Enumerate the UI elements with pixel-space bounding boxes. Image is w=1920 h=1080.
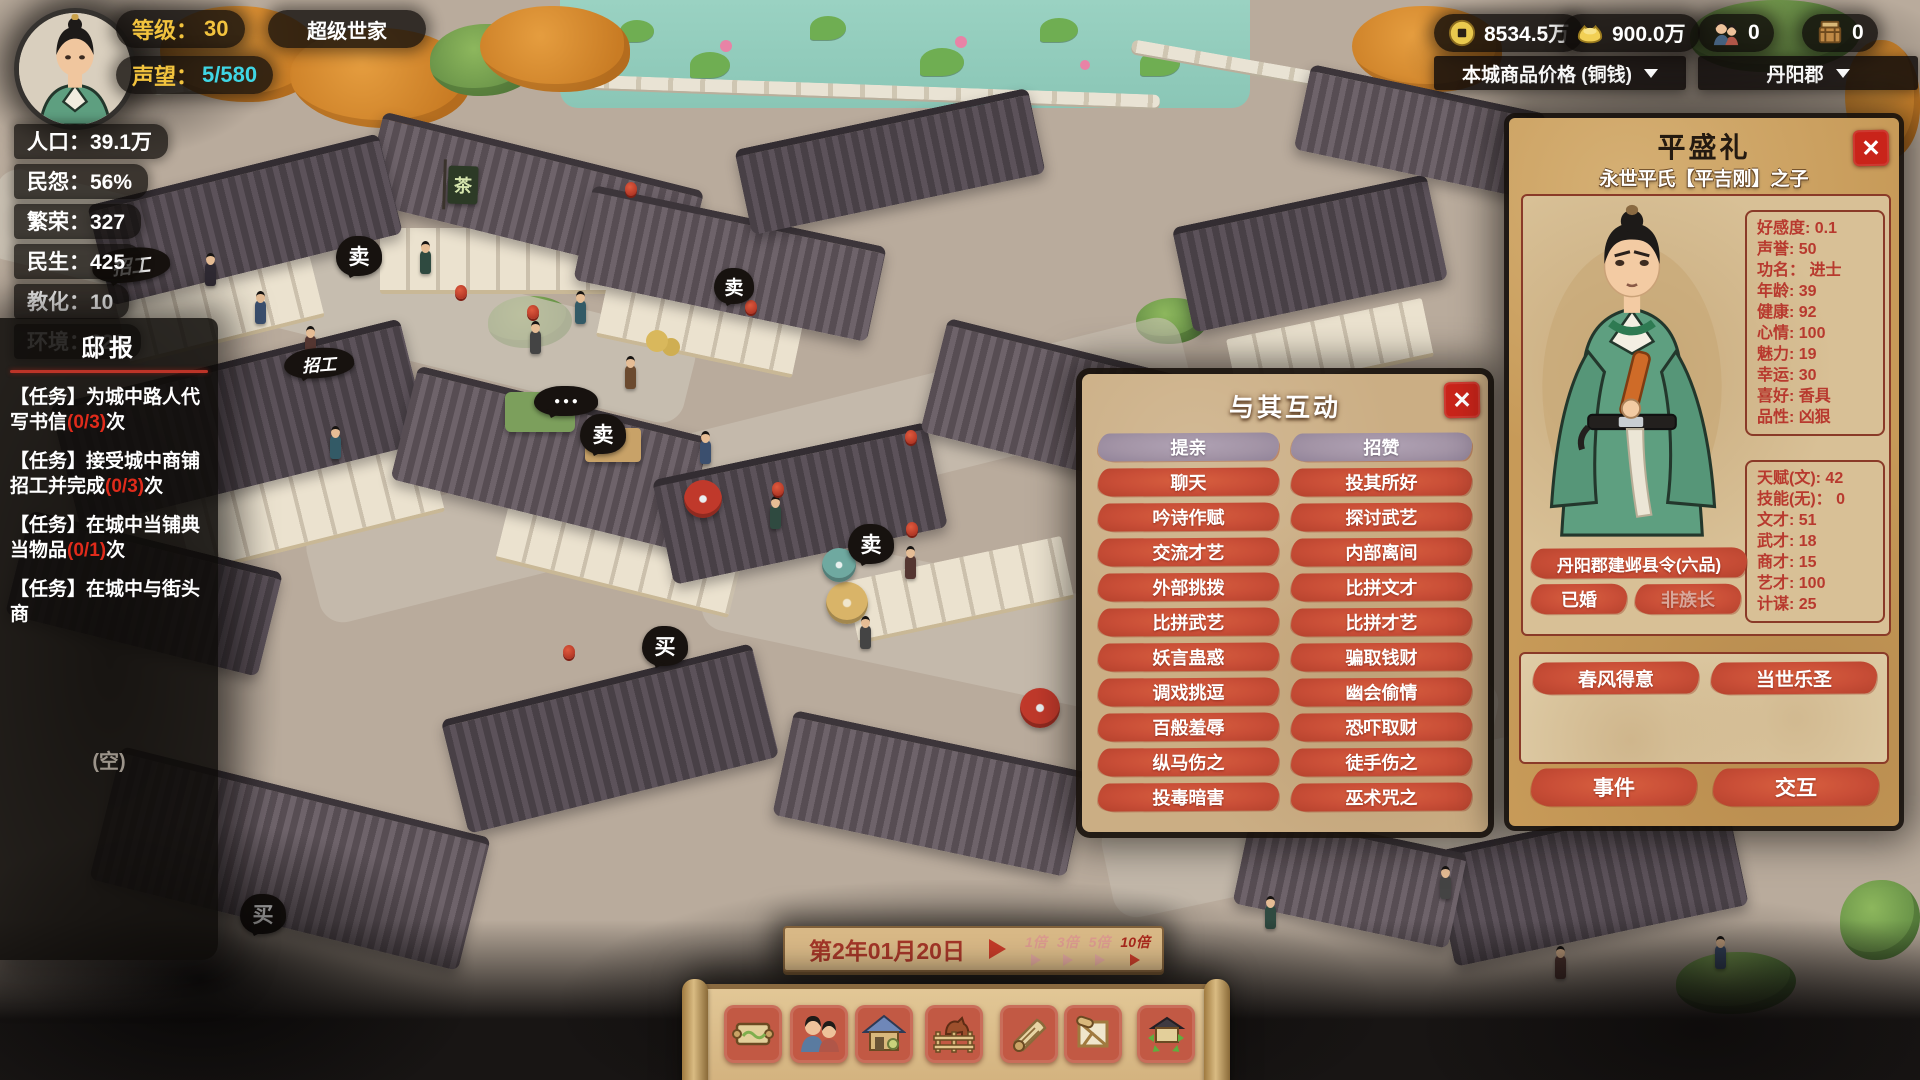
flirt-button[interactable]: 调戏挑逗 <box>1098 677 1279 706</box>
speed-10x-button[interactable]: 10倍 <box>1120 932 1150 966</box>
townsperson[interactable] <box>205 262 216 286</box>
servants-icon <box>1712 19 1740 47</box>
attr-luck: 幸运: 30 <box>1757 365 1873 386</box>
resource-servants: 0 <box>1698 14 1774 52</box>
not-clan-head-badge: 非族长 <box>1635 584 1741 615</box>
task-item[interactable]: 【任务】在城中当铺典当物品(0/1)次 <box>10 513 208 564</box>
speech-bubble-sell-1[interactable]: 卖 <box>336 236 382 276</box>
red-umbrella <box>1020 688 1060 728</box>
red-lantern <box>905 430 917 444</box>
talent-commerce: 商才: 15 <box>1757 552 1873 573</box>
attr-age: 年龄: 39 <box>1757 281 1873 302</box>
speed-5x-icon <box>1095 954 1105 966</box>
compete-martial-button[interactable]: 比拼武艺 <box>1098 607 1279 636</box>
chat-button[interactable]: 聊天 <box>1098 467 1279 496</box>
tool-workshop-button[interactable] <box>1064 1005 1122 1063</box>
townsperson[interactable] <box>1265 905 1276 929</box>
talent-box: 天赋(文): 42 技能(无)： 0 文才: 51 武才: 18 商才: 15 … <box>1745 460 1885 623</box>
interact-row: 外部挑拨 比拼文才 <box>1098 573 1472 601</box>
interact-row: 吟诗作赋 探讨武艺 <box>1098 503 1472 531</box>
speech-bubble-buy-2[interactable]: 买 <box>240 894 286 934</box>
townsperson[interactable] <box>1555 955 1566 979</box>
stat-prosperity: 繁荣：327 <box>14 204 141 239</box>
stat-livelihood: 民生：425 <box>14 244 141 279</box>
lotus-flower <box>955 36 967 48</box>
attr-hobby: 喜好: 香具 <box>1757 386 1873 407</box>
gazette-panel: 邸报 【任务】为城中路人代写书信(0/3)次 【任务】接受城中商铺招工并完成(0… <box>0 318 218 960</box>
townsperson[interactable] <box>420 250 431 274</box>
talent-art: 艺才: 100 <box>1757 573 1873 594</box>
interact-button-grid: 提亲 招赞 聊天 投其所好 吟诗作赋 探讨武艺 交流才艺 内部离间 外部挑拨 比… <box>1098 433 1472 811</box>
discuss-martial-arts-button[interactable]: 探讨武艺 <box>1291 502 1472 531</box>
interact-modal-close-button[interactable]: ✕ <box>1444 382 1481 419</box>
attr-temperament: 品性: 凶狠 <box>1757 407 1873 428</box>
office-badge: 丹阳郡建邺县令(六品) <box>1531 547 1747 579</box>
interact-modal: 与其互动 ✕ 提亲 招赞 聊天 投其所好 吟诗作赋 探讨武艺 交流才艺 内部离间… <box>1082 374 1488 832</box>
event-button[interactable]: 事件 <box>1531 767 1697 806</box>
townsperson[interactable] <box>860 625 871 649</box>
character-name: 平盛礼 <box>1509 126 1899 166</box>
green-bush <box>1676 952 1796 1014</box>
gold-ingot-icon <box>1576 19 1604 47</box>
internal-discord-button[interactable]: 内部离间 <box>1291 537 1472 566</box>
humiliate-button[interactable]: 百般羞辱 <box>1098 712 1279 741</box>
talent-gift: 天赋(文): 42 <box>1757 468 1873 489</box>
red-lantern <box>455 285 467 299</box>
gazette-divider <box>10 370 208 373</box>
level-value: 30 <box>204 16 228 42</box>
townsperson[interactable] <box>625 365 636 389</box>
speech-bubble-dots[interactable]: ● ● ● <box>534 386 598 416</box>
demagogue-button[interactable]: 妖言蛊惑 <box>1098 642 1279 671</box>
green-bush <box>1840 880 1920 960</box>
character-panel-close-button[interactable]: ✕ <box>1853 130 1890 167</box>
resource-copper: 8534.5万 <box>1434 14 1583 52</box>
tool-shop-button[interactable] <box>855 1005 913 1063</box>
stable-icon <box>932 1012 976 1056</box>
townsperson[interactable] <box>575 300 586 324</box>
interact-row: 交流才艺 内部离间 <box>1098 538 1472 566</box>
townsperson[interactable] <box>530 330 541 354</box>
chevron-down-icon <box>1644 69 1658 78</box>
lily-pad <box>690 52 730 78</box>
gazette-empty-label: (空) <box>0 745 218 774</box>
interact-row: 纵马伤之 徒手伤之 <box>1098 748 1472 776</box>
horse-injure-button[interactable]: 纵马伤之 <box>1098 747 1279 776</box>
lotus-flower <box>720 40 732 52</box>
servants-value: 0 <box>1748 21 1760 45</box>
level-bar: 等级： 30 <box>116 10 245 48</box>
townsperson[interactable] <box>330 435 341 459</box>
family-badge-label: 超级世家 <box>307 15 387 44</box>
propose-marriage-button[interactable]: 提亲 <box>1098 432 1279 461</box>
speed-3x-icon <box>1063 954 1073 966</box>
tool-map-button[interactable] <box>724 1005 782 1063</box>
region-dropdown-label: 丹阳郡 <box>1766 60 1823 87</box>
red-lantern <box>625 182 637 196</box>
game-screen: 茶 招工 卖 招工 ● ● ● 卖 卖 卖 买 买 <box>0 0 1920 1080</box>
attr-rank: 功名： 进士 <box>1757 260 1873 281</box>
date-label: 第2年01月20日 <box>809 932 965 966</box>
bottom-toolbar <box>698 984 1214 1080</box>
townsperson[interactable] <box>255 300 266 324</box>
stat-education: 教化：10 <box>14 284 129 319</box>
family-icon <box>797 1012 841 1056</box>
goods-icon <box>1816 19 1844 47</box>
tool-family-button[interactable] <box>790 1005 848 1063</box>
trait-badge-music-sage: 当世乐圣 <box>1711 661 1877 694</box>
family-badge: 超级世家 <box>268 10 426 48</box>
interact-row: 妖言蛊惑 骗取钱财 <box>1098 643 1472 671</box>
townsperson[interactable] <box>1440 875 1451 899</box>
speed-5x-button[interactable]: 5倍 <box>1089 932 1111 966</box>
hay-bale <box>646 330 668 352</box>
reputation-label: 声望： <box>132 59 198 91</box>
task-item[interactable]: 【任务】接受城中商铺招工并完成(0/3)次 <box>10 449 208 500</box>
compete-literary-button[interactable]: 比拼文才 <box>1291 572 1472 601</box>
talent-literary: 文才: 51 <box>1757 510 1873 531</box>
lily-pad <box>810 16 846 40</box>
reputation-bar: 声望： 5/580 <box>116 56 273 94</box>
task-item[interactable]: 【任务】在城中与街头商 <box>10 577 208 628</box>
trait-badge-spring-success: 春风得意 <box>1533 661 1699 694</box>
speech-bubble-sell-3[interactable]: 卖 <box>714 268 754 304</box>
chevron-down-icon <box>1836 69 1850 78</box>
task-item[interactable]: 【任务】为城中路人代写书信(0/3)次 <box>10 385 208 436</box>
red-lantern <box>527 305 539 319</box>
interact-row: 调戏挑逗 幽会偷情 <box>1098 678 1472 706</box>
recruit-son-in-law-button[interactable]: 招赞 <box>1291 432 1472 461</box>
townsperson[interactable] <box>1715 945 1726 969</box>
red-lantern <box>772 482 784 496</box>
level-label: 等级： <box>132 13 198 45</box>
interact-row: 比拼武艺 比拼才艺 <box>1098 608 1472 636</box>
character-portrait <box>1525 198 1739 546</box>
interact-row: 提亲 招赞 <box>1098 433 1472 461</box>
red-umbrella <box>684 480 722 518</box>
workshop-icon <box>1071 1012 1115 1056</box>
speech-bubble-buy-1[interactable]: 买 <box>642 626 688 666</box>
stat-population: 人口：39.1万 <box>14 124 168 159</box>
time-bar: 第2年01月20日 1倍 3倍 5倍 10倍 <box>783 926 1164 972</box>
townsperson[interactable] <box>770 505 781 529</box>
red-lantern <box>906 522 918 536</box>
trait-box: 春风得意 当世乐圣 <box>1519 652 1889 764</box>
speed-3x-button[interactable]: 3倍 <box>1057 932 1079 966</box>
townsperson[interactable] <box>700 440 711 464</box>
price-dropdown-label: 本城商品价格 (铜钱) <box>1462 60 1632 87</box>
price-dropdown[interactable]: 本城商品价格 (铜钱) <box>1434 56 1686 90</box>
talent-strategy: 计谋: 25 <box>1757 594 1873 615</box>
attr-reputation: 声誉: 50 <box>1757 239 1873 260</box>
red-lantern <box>563 645 575 659</box>
copper-coin-icon <box>1448 19 1476 47</box>
roof <box>772 710 1088 877</box>
interact-button[interactable]: 交互 <box>1713 767 1879 806</box>
tool-edict-button[interactable] <box>1000 1005 1058 1063</box>
attr-health: 健康: 92 <box>1757 302 1873 323</box>
goods-value: 0 <box>1852 21 1864 45</box>
lotus-flower <box>1080 60 1090 70</box>
poison-button[interactable]: 投毒暗害 <box>1098 782 1279 811</box>
interact-row: 百般羞辱 恐吓取财 <box>1098 713 1472 741</box>
attr-favor: 好感度: 0.1 <box>1757 218 1873 239</box>
external-provoke-button[interactable]: 外部挑拨 <box>1098 572 1279 601</box>
tool-relocate-button[interactable] <box>1137 1005 1195 1063</box>
compose-poetry-button[interactable]: 吟诗作赋 <box>1098 502 1279 531</box>
speech-bubble-sell-4[interactable]: 卖 <box>848 524 894 564</box>
interact-row: 投毒暗害 巫术咒之 <box>1098 783 1472 811</box>
talent-skill: 技能(无)： 0 <box>1757 489 1873 510</box>
married-badge: 已婚 <box>1531 584 1627 615</box>
player-avatar-portrait <box>19 13 131 125</box>
tea-flag-label: 茶 <box>454 172 473 199</box>
swindle-money-button[interactable]: 骗取钱财 <box>1291 642 1472 671</box>
townsperson[interactable] <box>905 555 916 579</box>
gold-value: 900.0万 <box>1612 18 1686 48</box>
roof <box>734 88 1046 235</box>
reputation-value: 5/580 <box>202 62 257 88</box>
attribute-box: 好感度: 0.1 声誉: 50 功名： 进士 年龄: 39 健康: 92 心情:… <box>1745 210 1885 436</box>
cater-interest-button[interactable]: 投其所好 <box>1291 467 1472 496</box>
resource-goods: 0 <box>1802 14 1878 52</box>
stat-grievance: 民怨：56% <box>14 164 148 199</box>
map-icon <box>731 1012 775 1056</box>
gazette-title: 邸报 <box>0 318 218 363</box>
red-lantern <box>745 300 757 314</box>
speed-controls: 1倍 3倍 5倍 10倍 <box>1025 932 1150 966</box>
attr-mood: 心情: 100 <box>1757 323 1873 344</box>
character-card: 好感度: 0.1 声誉: 50 功名： 进士 年龄: 39 健康: 92 心情:… <box>1521 194 1891 636</box>
tool-stable-button[interactable] <box>925 1005 983 1063</box>
character-subtitle: 永世平氏【平吉刚】之子 <box>1509 164 1899 191</box>
curse-button[interactable]: 巫术咒之 <box>1291 782 1472 811</box>
tea-shop-flag: 茶 <box>447 165 478 204</box>
speed-1x-icon <box>1031 954 1041 966</box>
secret-affair-button[interactable]: 幽会偷情 <box>1291 677 1472 706</box>
talent-martial: 武才: 18 <box>1757 531 1873 552</box>
relocate-building-icon <box>1144 1012 1188 1056</box>
copper-value: 8534.5万 <box>1484 18 1569 48</box>
interact-modal-title: 与其互动 <box>1082 388 1488 424</box>
extort-button[interactable]: 恐吓取财 <box>1291 712 1472 741</box>
speed-1x-button[interactable]: 1倍 <box>1025 932 1047 966</box>
play-button[interactable] <box>989 939 1006 959</box>
interact-row: 聊天 投其所好 <box>1098 468 1472 496</box>
compete-arts-button[interactable]: 比拼才艺 <box>1291 607 1472 636</box>
speed-10x-icon <box>1130 954 1140 966</box>
character-panel: 平盛礼 永世平氏【平吉刚】之子 ✕ <box>1509 118 1899 826</box>
resource-gold: 900.0万 <box>1562 14 1700 52</box>
edict-scroll-icon <box>1007 1012 1051 1056</box>
shop-icon <box>862 1012 906 1056</box>
lily-pad <box>1040 18 1078 42</box>
roof <box>441 643 780 834</box>
region-dropdown[interactable]: 丹阳郡 <box>1698 56 1918 90</box>
speech-bubble-sell-2[interactable]: 卖 <box>580 414 626 454</box>
barehand-injure-button[interactable]: 徒手伤之 <box>1291 747 1472 776</box>
exchange-arts-button[interactable]: 交流才艺 <box>1098 537 1279 566</box>
lily-pad <box>920 48 964 76</box>
attr-charm: 魅力: 19 <box>1757 344 1873 365</box>
